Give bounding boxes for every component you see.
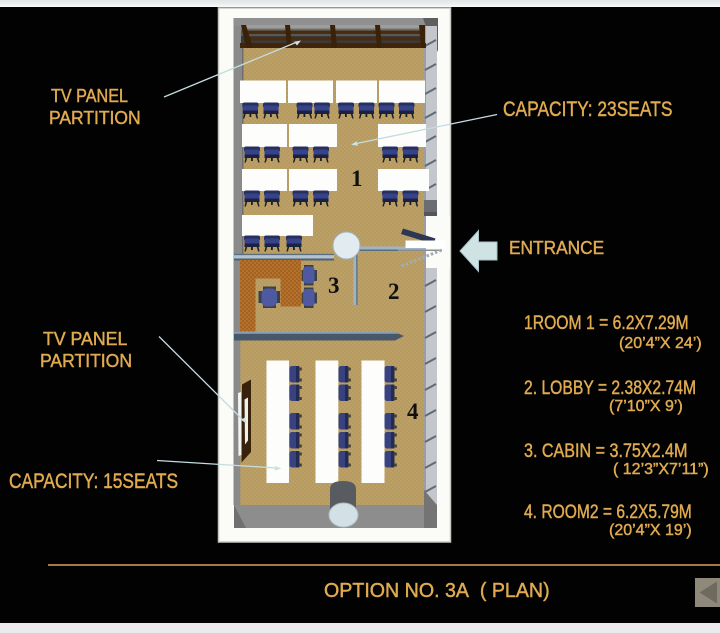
svg-text:4: 4 (407, 399, 419, 424)
svg-text:2: 2 (388, 279, 400, 304)
svg-text:1: 1 (351, 166, 363, 191)
svg-text:3: 3 (328, 273, 340, 298)
